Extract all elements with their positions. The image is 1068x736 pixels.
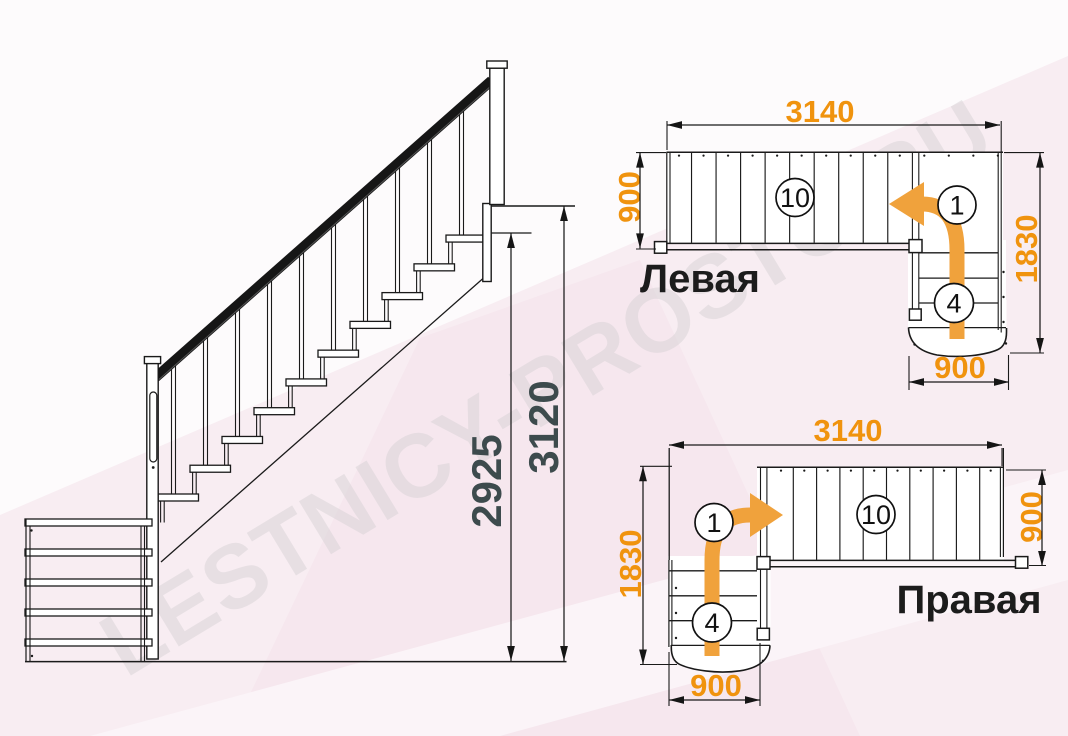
dim-right-900-width-label: 900	[1014, 491, 1049, 543]
drawing-canvas: LESTNICY-PROSTO.RU	[0, 0, 1068, 736]
steps-winder-count: 4	[946, 289, 961, 319]
newel-groove	[150, 392, 157, 462]
stringer-end-post	[655, 242, 667, 254]
dim-2925-label: 2925	[463, 434, 510, 527]
lower-post	[909, 309, 921, 320]
dim-left-3140-label: 3140	[786, 94, 855, 129]
top-post-body	[490, 68, 504, 205]
staircase-technical-drawing: LESTNICY-PROSTO.RU	[0, 0, 1068, 736]
dim-left-1830-label: 1830	[1009, 215, 1044, 284]
newel-dot	[152, 466, 155, 469]
plan-right-label: Правая	[896, 578, 1041, 622]
dim-right-900-lower-label: 900	[690, 668, 742, 703]
newel-post-cap	[144, 357, 160, 364]
step-number-badge: 10	[857, 496, 895, 534]
step-first-number: 1	[706, 508, 721, 538]
steps-winder-count: 4	[704, 608, 719, 638]
step-number-badge: 1	[938, 186, 976, 224]
corner-post	[909, 240, 922, 253]
dim-3120-label: 3120	[520, 380, 567, 473]
corner-post	[757, 557, 770, 570]
lower-post	[757, 628, 769, 640]
plan-left-label: Левая	[640, 257, 760, 301]
step-number-badge: 1	[695, 504, 733, 542]
dim-left-900-width-label: 900	[612, 171, 647, 223]
top-post-cap	[487, 61, 507, 68]
landing-fascia	[483, 204, 491, 282]
stringer-end-post	[1016, 557, 1028, 569]
steps-straight-count: 10	[861, 500, 891, 530]
steps-straight-count: 10	[780, 183, 810, 213]
step-number-badge: 10	[776, 179, 814, 217]
step-number-badge: 4	[935, 284, 974, 323]
dim-right-3140-label: 3140	[814, 413, 883, 448]
dim-left-900-lower-label: 900	[934, 350, 986, 385]
step-number-badge: 4	[693, 603, 732, 642]
step-first-number: 1	[949, 191, 964, 221]
